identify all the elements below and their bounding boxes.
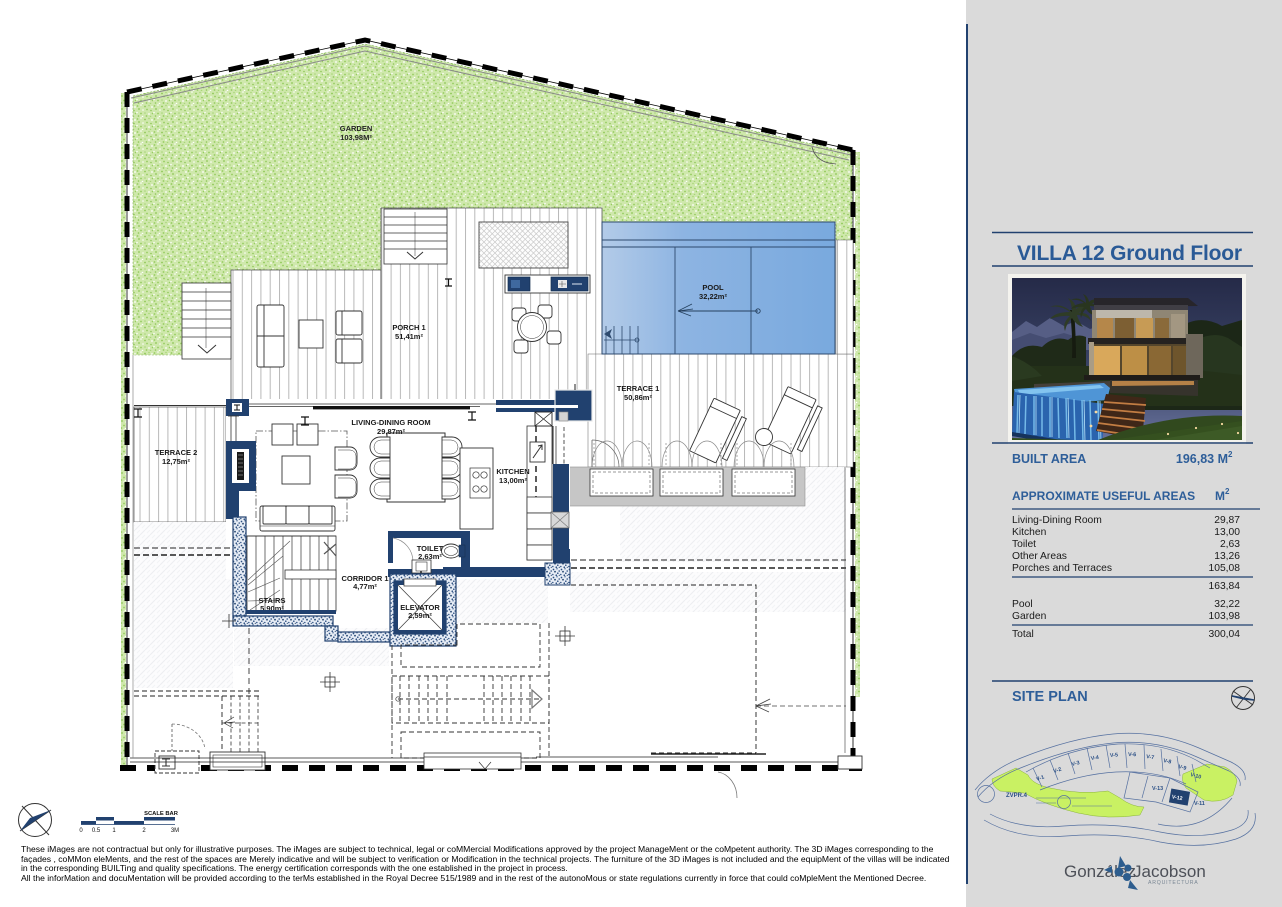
svg-text:Total: Total [1012, 629, 1034, 640]
svg-text:SITE PLAN: SITE PLAN [1012, 689, 1088, 705]
svg-text:POOL: POOL [702, 283, 724, 292]
svg-text:105,08: 105,08 [1209, 563, 1241, 574]
svg-text:2: 2 [1228, 450, 1233, 459]
svg-text:51,41m²: 51,41m² [395, 332, 423, 341]
svg-text:2,59m²: 2,59m² [408, 611, 432, 620]
svg-text:29,87: 29,87 [1214, 515, 1240, 526]
svg-text:V-6: V-6 [1128, 752, 1136, 758]
svg-text:TERRACE 2: TERRACE 2 [155, 448, 198, 457]
svg-text:300,04: 300,04 [1209, 629, 1241, 640]
svg-text:163,84: 163,84 [1209, 581, 1241, 592]
svg-text:13,00: 13,00 [1214, 527, 1240, 538]
svg-text:SCALE BAR: SCALE BAR [144, 811, 179, 817]
svg-text:32,22m²: 32,22m² [699, 292, 727, 301]
svg-text:ZVPR.4: ZVPR.4 [1006, 793, 1028, 799]
svg-text:Garden: Garden [1012, 611, 1047, 622]
svg-text:V-5: V-5 [1110, 752, 1118, 759]
svg-text:Living-Dining Room: Living-Dining Room [1012, 515, 1102, 526]
svg-text:Toilet: Toilet [1012, 539, 1036, 550]
svg-text:2: 2 [1225, 487, 1230, 496]
svg-text:PORCH 1: PORCH 1 [392, 323, 425, 332]
svg-text:APPROXIMATE USEFUL AREAS: APPROXIMATE USEFUL AREAS [1012, 489, 1195, 503]
svg-text:in the corresponding BUILTing: in the corresponding BUILTing and qualit… [21, 863, 568, 873]
svg-text:Kitchen: Kitchen [1012, 527, 1047, 538]
svg-text:LIVING-DINING ROOM: LIVING-DINING ROOM [351, 418, 430, 427]
svg-text:29,87m²: 29,87m² [377, 427, 405, 436]
svg-text:GARDEN: GARDEN [340, 124, 373, 133]
svg-text:Porches and Terraces: Porches and Terraces [1012, 563, 1112, 574]
svg-text:BUILT AREA: BUILT AREA [1012, 452, 1086, 466]
svg-text:3M: 3M [171, 828, 179, 834]
svg-text:2,63: 2,63 [1220, 539, 1240, 550]
svg-text:13,00m²: 13,00m² [499, 476, 527, 485]
svg-text:Jacobson: Jacobson [1133, 862, 1206, 881]
svg-text:ARQUITECTURA: ARQUITECTURA [1148, 880, 1199, 886]
svg-text:Other Areas: Other Areas [1012, 551, 1067, 562]
svg-text:KITCHEN: KITCHEN [496, 467, 529, 476]
svg-text:TERRACE 1: TERRACE 1 [617, 384, 660, 393]
svg-text:196,83 M: 196,83 M [1176, 452, 1228, 466]
svg-text:0.5: 0.5 [92, 828, 101, 834]
svg-text:V-11: V-11 [1194, 801, 1205, 807]
svg-text:These iMages are not contractu: These iMages are not contractual but onl… [21, 844, 934, 854]
svg-text:12,75m²: 12,75m² [162, 457, 190, 466]
svg-text:32,22: 32,22 [1214, 599, 1240, 610]
svg-text:All the inforMation and docuMe: All the inforMation and docuMentation wi… [21, 873, 926, 883]
svg-text:50,86m²: 50,86m² [624, 393, 652, 402]
svg-text:VILLA 12 Ground Floor: VILLA 12 Ground Floor [1017, 242, 1242, 265]
svg-text:4,77m²: 4,77m² [353, 582, 377, 591]
svg-text:V-7: V-7 [1146, 754, 1155, 761]
svg-text:V-4: V-4 [1090, 755, 1099, 762]
svg-text:103,98M²: 103,98M² [340, 133, 372, 142]
svg-text:13,26: 13,26 [1214, 551, 1240, 562]
svg-text:Pool: Pool [1012, 599, 1033, 610]
svg-text:M: M [1215, 489, 1225, 503]
svg-text:103,98: 103,98 [1209, 611, 1241, 622]
svg-text:V-13: V-13 [1152, 786, 1163, 792]
